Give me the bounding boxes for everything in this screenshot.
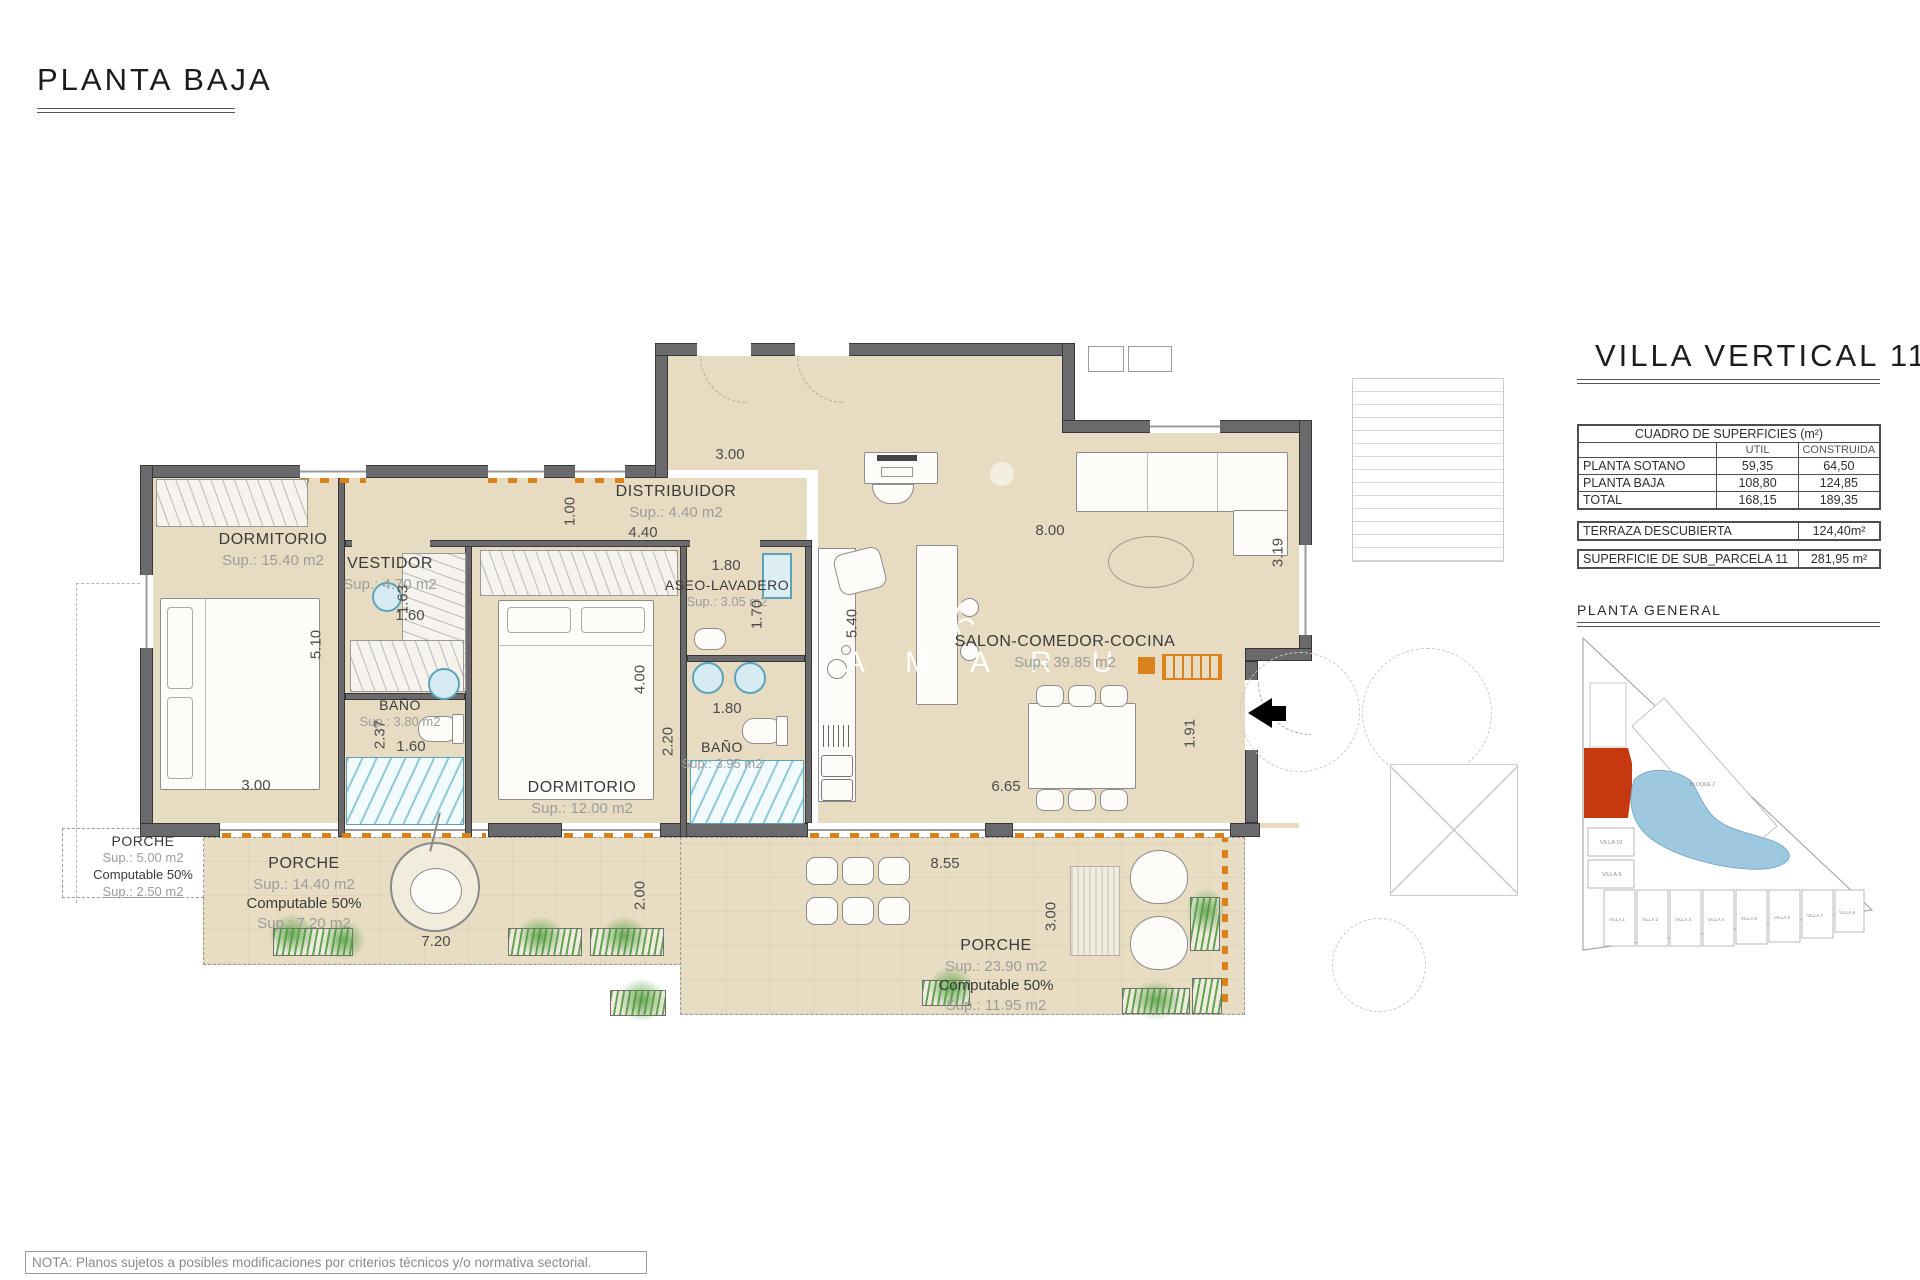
site-building: [1590, 683, 1626, 747]
plant-icon: [600, 916, 648, 956]
wall: [687, 655, 805, 662]
shower: [346, 757, 464, 825]
wall: [1230, 823, 1260, 837]
chair: [806, 897, 838, 925]
sill: [222, 833, 486, 838]
svg-text:VILLA 5: VILLA 5: [1741, 916, 1758, 921]
dimension: 1.91: [1182, 712, 1199, 756]
dimension: 6.65: [984, 778, 1028, 795]
dimension: 5.10: [308, 623, 325, 667]
egg-chair: [1130, 916, 1188, 970]
plant-icon: [1130, 980, 1182, 1020]
dimension: 2.00: [632, 874, 649, 918]
svg-text:VILLA 1: VILLA 1: [1609, 917, 1626, 922]
site-bloque2-label: BLOQUE 2: [1690, 782, 1715, 788]
wall: [465, 540, 472, 837]
title-underline: [37, 108, 235, 113]
tree-icon: [1240, 652, 1360, 772]
planter: [1192, 978, 1222, 1014]
neighbor-structure: [1390, 764, 1518, 896]
dimension: 4.00: [632, 658, 649, 702]
room-label-distribuidor: DISTRIBUIDOR Sup.: 4.40 m2: [591, 482, 761, 522]
window: [488, 465, 544, 478]
dimension: 5.40: [844, 602, 861, 646]
chair: [1036, 789, 1064, 811]
desk: [864, 452, 938, 484]
site-plan-title: PLANTA GENERAL: [1577, 602, 1721, 618]
door-opening: [690, 540, 760, 547]
wall: [655, 343, 668, 478]
terraza-row: TERRAZA DESCUBIERTA 124,40m²: [1577, 521, 1881, 541]
tree-icon: [1332, 918, 1426, 1012]
svg-text:VILLA 2: VILLA 2: [1642, 917, 1659, 922]
chair: [878, 897, 910, 925]
svg-text:VILLA 8: VILLA 8: [1839, 910, 1856, 915]
svg-text:VILLA 7: VILLA 7: [1807, 913, 1824, 918]
plant-icon: [516, 916, 564, 956]
room-label-dormitorio-2: DORMITORIO Sup.: 12.00 m2: [502, 778, 662, 818]
wardrobe: [156, 479, 308, 527]
dimension: 4.40: [621, 524, 665, 541]
site-villa-label: VILLA 9: [1602, 872, 1621, 878]
chair: [878, 857, 910, 885]
exterior-unit: [1128, 346, 1172, 372]
page-title: PLANTA BAJA: [37, 62, 273, 98]
wall: [140, 465, 153, 837]
room-label-salon: SALON-COMEDOR-COCINA Sup.: 39.85 m2: [950, 632, 1180, 672]
villa-title-underline: [1577, 379, 1880, 384]
parcela-row: SUPERFICIE DE SUB_PARCELA 11 281,95 m²: [1577, 549, 1881, 569]
pergola-strip: [1222, 838, 1228, 1002]
bed: [160, 598, 320, 790]
chair: [1100, 685, 1128, 707]
window: [140, 575, 153, 648]
col-construida: CONSTRUIDA: [1798, 443, 1879, 457]
sill: [300, 478, 366, 483]
chair: [1036, 685, 1064, 707]
site-villa-label: VILLA 10: [1600, 840, 1622, 846]
dimension: 3.00: [1043, 895, 1060, 939]
dimension: 3.00: [234, 777, 278, 794]
dimension: 8.00: [1028, 522, 1072, 539]
window: [1150, 420, 1220, 433]
svg-text:VILLA 4: VILLA 4: [1708, 917, 1725, 922]
sill: [564, 833, 658, 838]
exterior-unit: [1088, 346, 1124, 372]
room-label-banio-1: BAÑO Sup.: 3.80 m2: [340, 696, 460, 731]
door-opening: [697, 343, 751, 356]
dining-table: [1028, 703, 1136, 789]
outdoor-rug: [1070, 866, 1120, 956]
svg-text:VILLA 3: VILLA 3: [1675, 917, 1692, 922]
toilet-icon: [694, 628, 726, 650]
site-highlight-parcel-11: [1584, 748, 1632, 818]
sill: [1015, 833, 1228, 838]
sill: [810, 833, 983, 838]
villa-title: VILLA VERTICAL 11: [1595, 338, 1920, 374]
surfaces-table: CUADRO DE SUPERFICIES (m²) UTIL CONSTRUI…: [1577, 424, 1881, 510]
egg-chair: [1130, 850, 1188, 904]
chair: [806, 857, 838, 885]
dimension: 3.00: [708, 446, 752, 463]
sofa: [1076, 452, 1288, 512]
window: [575, 465, 625, 478]
plant-icon: [618, 978, 666, 1022]
dimension: 3.19: [1270, 531, 1287, 575]
door-opening: [352, 540, 430, 547]
tree-icon: [1362, 648, 1492, 778]
wall: [985, 823, 1013, 837]
dimension: 1.00: [562, 490, 579, 534]
sink-icon: [692, 662, 724, 694]
svg-text:VILLA 6: VILLA 6: [1774, 915, 1791, 920]
surfaces-table-title: CUADRO DE SUPERFICIES (m²): [1579, 426, 1879, 442]
rug: [1108, 536, 1194, 588]
room-label-vestidor: VESTIDOR Sup.: 4.70 m2: [320, 554, 460, 594]
site-bottom-villas: VILLA 1 VILLA 2 VILLA 3 VILLA 4 VILLA 5 …: [1604, 890, 1864, 946]
dimension: 1.60: [388, 607, 432, 624]
dimension: 1.70: [749, 593, 766, 637]
plant-icon: [1186, 888, 1226, 934]
chair: [842, 897, 874, 925]
chair: [1068, 789, 1096, 811]
table-row: PLANTA SOTANO 59,35 64,50: [1579, 457, 1879, 474]
dimension: 8.55: [923, 855, 967, 872]
ceiling-light-icon: [990, 462, 1014, 486]
room-label-banio-2: BAÑO Sup.: 3.95 m2: [662, 738, 782, 773]
wall: [488, 823, 562, 837]
site-title-underline: [1577, 622, 1880, 627]
table-row: PLANTA BAJA 108,80 124,85: [1579, 474, 1879, 491]
sink-icon: [734, 662, 766, 694]
window: [1299, 545, 1312, 635]
plot-boundary: [76, 583, 140, 584]
floor-plan-sheet: PLANTA BAJA VILLA VERTICAL 11 CUADRO DE …: [0, 0, 1920, 1280]
room-label-aseo: ASEO-LAVADERO Sup.: 3.05 m2: [647, 576, 807, 611]
dimension: 7.20: [414, 933, 458, 950]
site-plan: BLOQUE 2 VILLA 10 VILLA 9 VILLA 1 VILLA …: [1572, 628, 1902, 968]
col-util: UTIL: [1716, 443, 1797, 457]
dimension: 1.80: [705, 700, 749, 717]
egg-chair: [390, 842, 480, 932]
stairs: [1352, 378, 1504, 562]
chair: [1100, 789, 1128, 811]
room-label-porche-center: PORCHE Sup.: 14.40 m2 Computable 50% Sup…: [224, 854, 384, 933]
dimension: 1.60: [389, 738, 433, 755]
chair: [842, 857, 874, 885]
room-label-porche-left: PORCHE Sup.: 5.00 m2 Computable 50% Sup.…: [64, 832, 222, 901]
dimension: 2.37: [372, 713, 389, 757]
note-box: NOTA: Planos sujetos a posibles modifica…: [25, 1251, 647, 1274]
sill: [488, 478, 544, 483]
window: [300, 465, 366, 478]
door-opening: [795, 343, 849, 356]
dimension: 2.20: [660, 720, 677, 764]
room-label-porche-right: PORCHE Sup.: 23.90 m2 Computable 50% Sup…: [916, 936, 1076, 1015]
table-row: TOTAL 168,15 189,35: [1579, 491, 1879, 508]
chair: [1068, 685, 1096, 707]
dimension: 1.80: [704, 557, 748, 574]
surfaces-table-header-row: UTIL CONSTRUIDA: [1579, 442, 1879, 457]
